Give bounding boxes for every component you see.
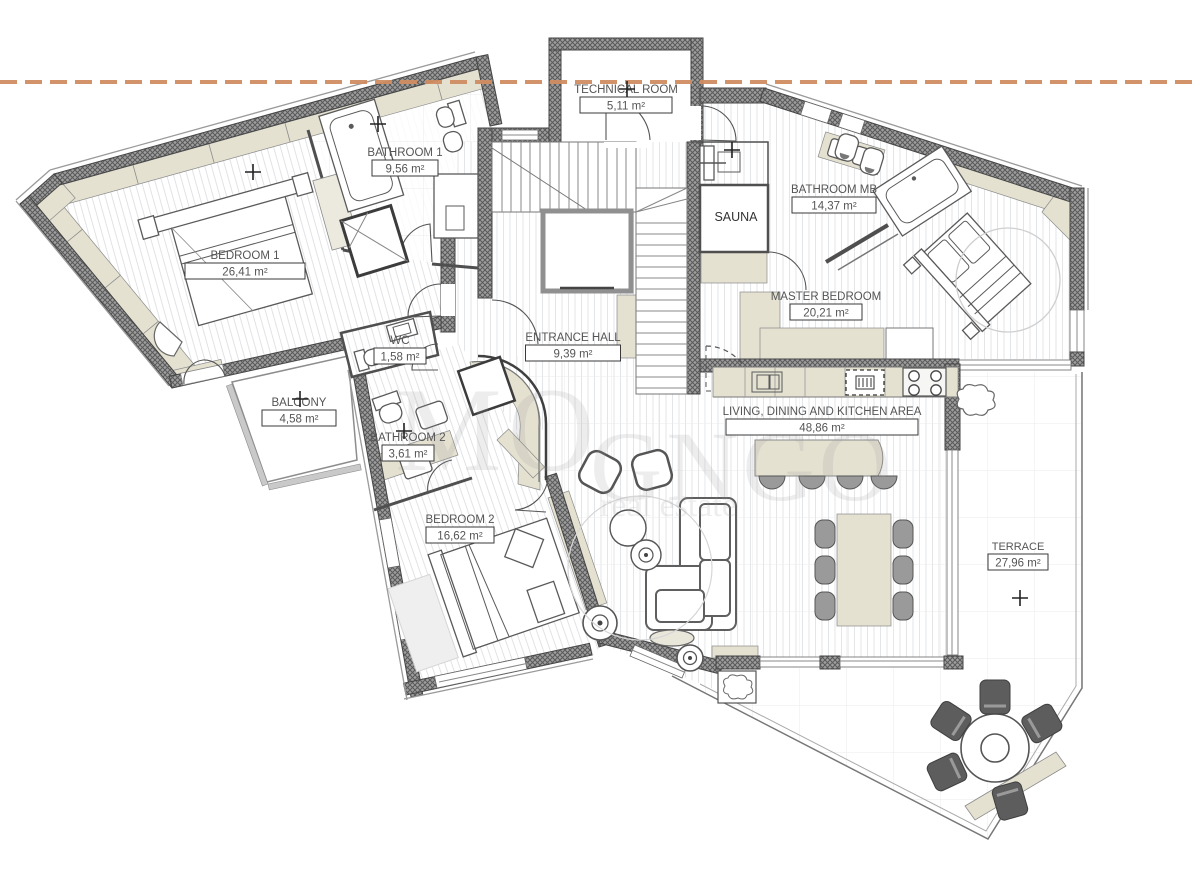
svg-text:16,62 m²: 16,62 m² [437,531,483,543]
svg-text:4,58 m²: 4,58 m² [280,414,319,426]
svg-text:BATHROOM 1: BATHROOM 1 [367,147,442,159]
svg-text:20,21 m²: 20,21 m² [803,308,849,320]
svg-text:TERRACE: TERRACE [992,541,1045,553]
svg-text:48,86 m²: 48,86 m² [799,423,845,435]
svg-text:BEDROOM 2: BEDROOM 2 [425,514,494,526]
svg-text:LIVING, DINING AND KITCHEN ARE: LIVING, DINING AND KITCHEN AREA [723,406,922,418]
svg-text:TECHNICAL ROOM: TECHNICAL ROOM [574,84,678,96]
svg-text:SAUNA: SAUNA [714,210,758,224]
svg-text:9,56 m²: 9,56 m² [386,164,425,176]
svg-text:14,37 m²: 14,37 m² [811,201,857,213]
svg-text:BATHROOM MB: BATHROOM MB [791,184,877,196]
svg-text:9,39 m²: 9,39 m² [554,349,593,361]
svg-text:5,11 m²: 5,11 m² [607,101,645,113]
svg-text:BATHROOM 2: BATHROOM 2 [370,432,445,444]
svg-text:26,41 m²: 26,41 m² [222,267,268,279]
svg-text:ENTRANCE HALL: ENTRANCE HALL [525,332,621,344]
svg-text:BEDROOM 1: BEDROOM 1 [210,250,279,262]
svg-text:27,96 m²: 27,96 m² [995,558,1041,570]
svg-text:MASTER BEDROOM: MASTER BEDROOM [771,291,882,303]
svg-text:real estate: real estate [600,487,737,524]
svg-text:3,61 m²: 3,61 m² [389,449,428,461]
svg-text:WC: WC [390,335,409,347]
svg-text:1,58 m²: 1,58 m² [381,352,420,364]
svg-text:MO: MO [395,363,600,496]
